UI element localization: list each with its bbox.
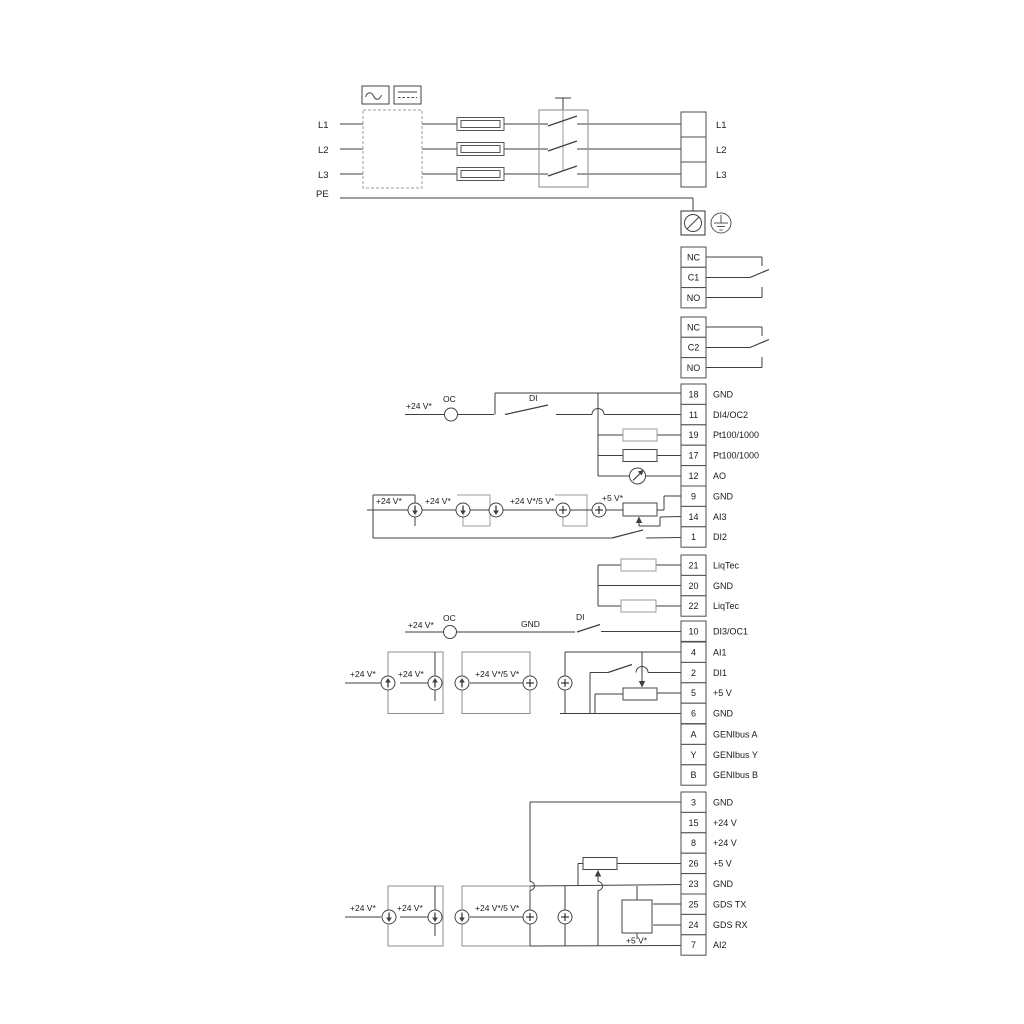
terminal-label: DI1 xyxy=(713,668,727,678)
resistor xyxy=(623,450,657,462)
mains-line-label: L1 xyxy=(318,120,329,131)
terminal-label: +5 V xyxy=(713,859,732,869)
terminal-label: GENIbus Y xyxy=(713,750,758,760)
terminal-number: 6 xyxy=(691,709,696,719)
terminal-label: Pt100/1000 xyxy=(713,430,759,440)
terminal-label: GENIbus A xyxy=(713,729,758,739)
terminal-cell xyxy=(681,137,706,162)
potentiometer xyxy=(623,688,657,700)
terminal-cell xyxy=(681,162,706,187)
terminal-number: 2 xyxy=(691,668,696,678)
terminal-number: 17 xyxy=(688,451,698,461)
mains-line-label: L3 xyxy=(318,170,329,181)
terminal-number: 19 xyxy=(688,430,698,440)
terminal-label: GND xyxy=(713,709,734,719)
terminal-label: GND xyxy=(713,491,734,501)
terminal-label: GDS RX xyxy=(713,920,748,930)
terminal-label: L3 xyxy=(716,170,727,181)
annotation-label: DI xyxy=(529,393,538,403)
wire xyxy=(660,517,681,518)
annotation-label: GND xyxy=(521,619,540,629)
annotation-label: +5 V* xyxy=(626,936,648,946)
annotation-label: DI xyxy=(576,612,585,622)
terminal-cell xyxy=(681,112,706,137)
terminal-label: L1 xyxy=(716,120,727,131)
background xyxy=(0,0,1024,1024)
dc-symbol-box xyxy=(394,86,421,104)
terminal-number: NC xyxy=(687,252,700,262)
terminal-number: 4 xyxy=(691,647,696,657)
terminal-number: 15 xyxy=(688,818,698,828)
wire xyxy=(646,538,681,539)
annotation-label: +24 V* xyxy=(350,903,376,913)
terminal-number: Y xyxy=(690,750,696,760)
alt-wiring-box xyxy=(462,886,530,946)
terminal-label: GND xyxy=(713,879,734,889)
terminal-number: 5 xyxy=(691,688,696,698)
terminal-label: AI1 xyxy=(713,647,727,657)
terminal-number: C1 xyxy=(688,273,700,283)
terminal-label: GDS TX xyxy=(713,899,746,909)
wire xyxy=(530,946,681,947)
mains-line-label: L2 xyxy=(318,145,329,156)
gds-sensor-box xyxy=(622,900,652,933)
terminal-label: AI2 xyxy=(713,940,727,950)
terminal-number: 14 xyxy=(688,512,698,522)
annotation-label: +24 V* xyxy=(350,669,376,679)
terminal-label: AI3 xyxy=(713,512,727,522)
terminal-label: DI2 xyxy=(713,532,727,542)
terminal-label: L2 xyxy=(716,145,727,156)
resistor xyxy=(621,559,656,571)
resistor xyxy=(623,429,657,441)
terminal-label: GND xyxy=(713,797,734,807)
terminal-number: 24 xyxy=(688,920,698,930)
fuse-inner xyxy=(461,171,500,178)
terminal-label: GND xyxy=(713,581,734,591)
annotation-label: OC xyxy=(443,394,456,404)
terminal-number: 20 xyxy=(688,581,698,591)
terminal-number: 23 xyxy=(688,879,698,889)
annotation-label: +24 V* xyxy=(376,496,402,506)
terminal-label: DI4/OC2 xyxy=(713,410,748,420)
annotation-label: +24 V*/5 V* xyxy=(475,669,520,679)
terminal-number: B xyxy=(690,770,696,780)
annotation-label: +24 V* xyxy=(408,620,434,630)
annotation-label: +5 V* xyxy=(602,493,624,503)
fuse-inner xyxy=(461,121,500,128)
annotation-label: +24 V* xyxy=(398,669,424,679)
terminal-label: DI3/OC1 xyxy=(713,626,748,636)
terminal-number: NO xyxy=(687,293,701,303)
terminal-number: 7 xyxy=(691,940,696,950)
terminal-number: 12 xyxy=(688,471,698,481)
terminal-label: +24 V xyxy=(713,838,737,848)
terminal-label: Pt100/1000 xyxy=(713,451,759,461)
terminal-number: NO xyxy=(687,363,701,373)
terminal-number: 26 xyxy=(688,859,698,869)
terminal-label: AO xyxy=(713,471,726,481)
terminal-number: 3 xyxy=(691,797,696,807)
potentiometer xyxy=(583,858,617,870)
wiring-diagram: L1L2L3NCC1NONCC2NO18GND11DI4/OC219Pt100/… xyxy=(0,0,1024,1024)
oc-circle-icon xyxy=(444,626,457,639)
oc-circle-icon xyxy=(445,408,458,421)
terminal-label: GND xyxy=(713,389,734,399)
terminal-number: 10 xyxy=(688,626,698,636)
potentiometer xyxy=(623,503,657,516)
terminal-label: +5 V xyxy=(713,688,732,698)
terminal-number: A xyxy=(690,729,696,739)
terminal-number: 22 xyxy=(688,601,698,611)
terminal-number: 11 xyxy=(689,410,698,420)
terminal-number: 21 xyxy=(688,560,698,570)
terminal-number: 18 xyxy=(688,389,698,399)
terminal-number: NC xyxy=(687,322,700,332)
annotation-label: OC xyxy=(443,613,456,623)
annotation-label: +24 V* xyxy=(397,903,423,913)
terminal-label: GENIbus B xyxy=(713,770,758,780)
terminal-label: LiqTec xyxy=(713,560,740,570)
terminal-label: +24 V xyxy=(713,818,737,828)
annotation-label: +24 V* xyxy=(425,496,451,506)
resistor xyxy=(621,600,656,612)
terminal-number: 9 xyxy=(691,491,696,501)
terminal-number: 25 xyxy=(688,899,698,909)
annotation-label: +24 V*/5 V* xyxy=(510,496,555,506)
terminal-label: LiqTec xyxy=(713,601,740,611)
terminal-number: 1 xyxy=(691,532,696,542)
terminal-number: 8 xyxy=(691,838,696,848)
mains-line-label: PE xyxy=(316,189,329,200)
annotation-label: +24 V* xyxy=(406,401,432,411)
annotation-label: +24 V*/5 V* xyxy=(475,903,520,913)
wiring-diagram-page: L1L2L3NCC1NONCC2NO18GND11DI4/OC219Pt100/… xyxy=(0,0,1024,1024)
fuse-inner xyxy=(461,146,500,153)
terminal-number: C2 xyxy=(688,343,700,353)
